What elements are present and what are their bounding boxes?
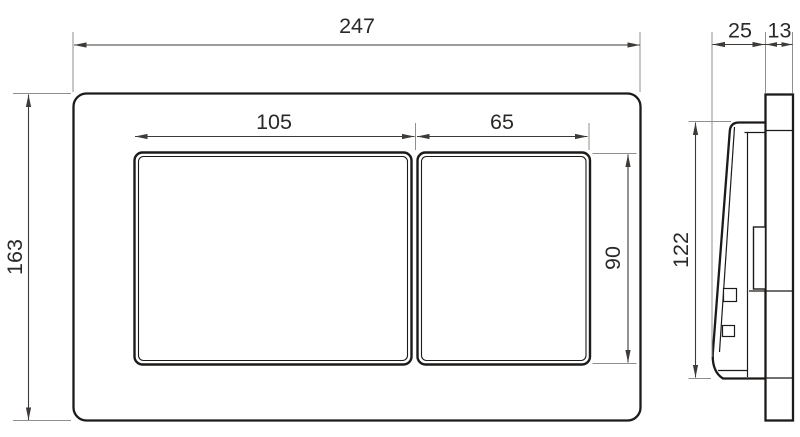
left-button xyxy=(135,153,412,365)
dim-overall-width-label: 247 xyxy=(339,14,375,38)
arrowhead-right-icon xyxy=(753,42,766,47)
dim-overall-width: 247 xyxy=(73,14,640,92)
side-clip-upper xyxy=(724,289,737,302)
arrowhead-up-icon xyxy=(26,95,31,108)
technical-drawing-page: 247 163 105 xyxy=(0,0,800,437)
dim-button-height-label: 90 xyxy=(601,246,625,270)
dim-overall-height: 163 xyxy=(3,94,71,421)
drawing-svg: 247 163 105 xyxy=(0,0,800,437)
dim-left-button-width-label: 105 xyxy=(256,110,292,134)
dim-plate-depth-label: 13 xyxy=(768,19,792,43)
arrowhead-right-icon xyxy=(628,42,641,47)
arrowhead-left-icon xyxy=(766,42,777,47)
dim-button-depth-label: 25 xyxy=(728,19,752,43)
arrowhead-left-icon xyxy=(713,42,726,47)
arrowhead-left-icon xyxy=(74,42,87,47)
side-view: 25 13 122 xyxy=(669,19,793,421)
dim-right-button-width-label: 65 xyxy=(490,110,514,134)
side-clip-lower xyxy=(723,326,735,337)
arrowhead-up-icon xyxy=(693,123,698,136)
arrowhead-down-icon xyxy=(26,408,31,421)
arrowhead-down-icon xyxy=(693,365,698,378)
front-view: 247 163 105 xyxy=(3,14,641,421)
dim-side-button-height-label: 122 xyxy=(669,232,693,268)
arrowhead-right-icon xyxy=(782,42,793,47)
dim-overall-height-label: 163 xyxy=(3,239,27,275)
right-button xyxy=(418,153,591,365)
side-plate-outline xyxy=(766,95,794,421)
side-latch-block xyxy=(754,227,766,289)
